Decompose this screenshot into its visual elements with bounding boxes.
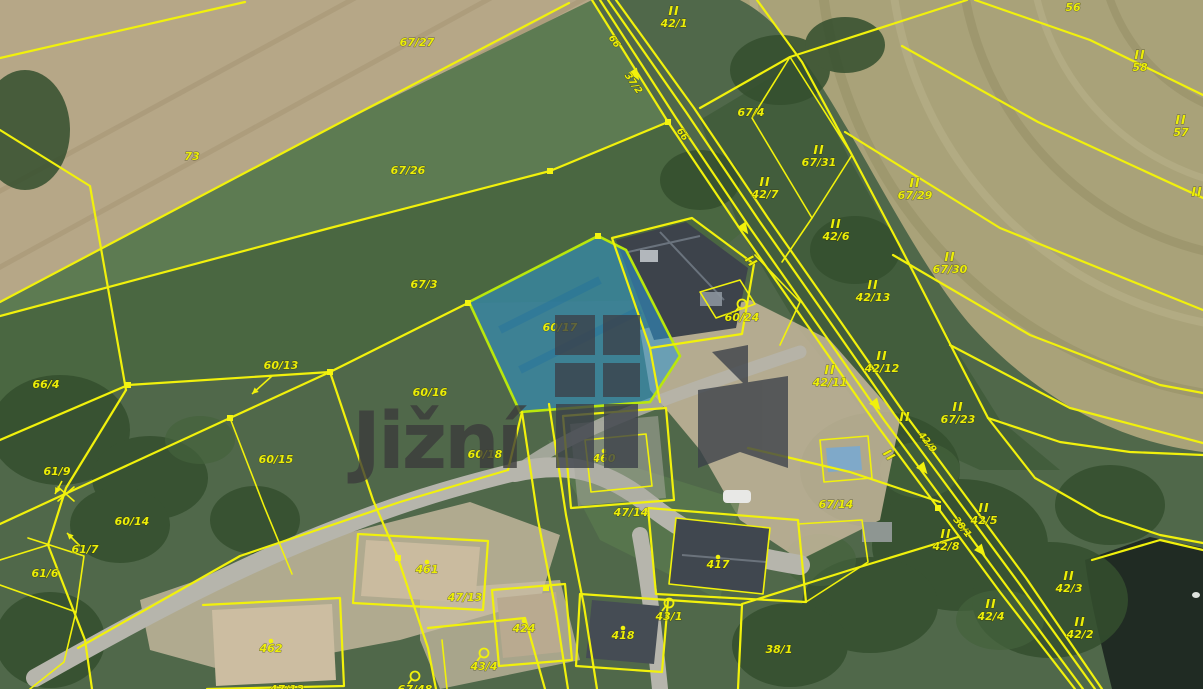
svg-text:42/1: 42/1 (660, 17, 688, 30)
ii-marker-icon: II (813, 142, 824, 157)
svg-text:417: 417 (706, 558, 730, 571)
white-car (723, 490, 751, 503)
svg-text:47/12: 47/12 (269, 683, 305, 689)
svg-text:58: 58 (1132, 61, 1148, 74)
parcel-label-67-27: 67/27 (400, 36, 435, 49)
ii-marker-icon: II (909, 175, 920, 190)
svg-text:38/1: 38/1 (766, 643, 793, 656)
svg-text:462: 462 (259, 642, 283, 655)
svg-text:67/26: 67/26 (391, 164, 426, 177)
parcel-label-424: 424 (512, 619, 536, 635)
water-glint (1192, 592, 1200, 598)
svg-text:67/4: 67/4 (738, 106, 765, 119)
svg-text:67/3: 67/3 (411, 278, 438, 291)
svg-text:67/30: 67/30 (933, 263, 968, 276)
parcel-label-60-14: 60/14 (115, 515, 150, 528)
parcel-label-418: 418 (611, 626, 635, 642)
svg-text:60/15: 60/15 (259, 453, 294, 466)
parcel-label-60-15: 60/15 (259, 453, 294, 466)
svg-text:60/13: 60/13 (264, 359, 299, 372)
svg-text:424: 424 (512, 622, 536, 635)
svg-text:67/29: 67/29 (898, 189, 933, 202)
gray-shed (862, 522, 892, 542)
svg-text:67/31: 67/31 (802, 156, 837, 169)
parcel-label-67-14: 67/14 (819, 498, 854, 511)
svg-text:61/6: 61/6 (32, 567, 59, 580)
svg-text:42/13: 42/13 (855, 291, 891, 304)
svg-text:67/23: 67/23 (941, 413, 976, 426)
ii-marker-icon: II (1074, 614, 1085, 629)
cadastral-map-viewport[interactable]: 67/277367/2667/366/4II42/167/456II58II57… (0, 0, 1203, 689)
ii-marker-icon: II (952, 399, 963, 414)
parcel-label-61-6: 61/6 (32, 567, 59, 580)
parcel-label-ii-marker: II (1191, 184, 1202, 199)
ii-marker-icon: II (978, 500, 989, 515)
ii-marker-icon: II (1134, 47, 1145, 62)
ii-marker-icon: II (1175, 112, 1186, 127)
svg-text:43/4: 43/4 (470, 660, 498, 673)
ii-marker-icon: II (876, 348, 887, 363)
parcel-label-38-1: 38/1 (766, 643, 793, 656)
parcel-label-67-4: 67/4 (738, 106, 765, 119)
ii-marker-icon: II (1191, 184, 1202, 199)
svg-text:42/11: 42/11 (812, 376, 848, 389)
svg-text:42/2: 42/2 (1066, 628, 1094, 641)
parcel-label-58: II58 (1132, 47, 1148, 74)
parcel-label-47-12: 47/12 (269, 683, 305, 689)
svg-text:60/14: 60/14 (115, 515, 150, 528)
svg-text:42/3: 42/3 (1055, 582, 1083, 595)
parcel-label-66-4: 66/4 (33, 378, 60, 391)
svg-text:67/48: 67/48 (398, 683, 433, 689)
svg-text:461: 461 (415, 563, 439, 576)
ii-marker-icon: II (867, 277, 878, 292)
parcel-label-47-13: 47/13 (447, 591, 483, 604)
svg-text:66/4: 66/4 (33, 378, 60, 391)
svg-text:56: 56 (1065, 1, 1081, 14)
svg-text:42/7: 42/7 (751, 188, 779, 201)
ii-marker-icon: II (830, 216, 841, 231)
svg-text:43/1: 43/1 (655, 610, 683, 623)
svg-text:67/14: 67/14 (819, 498, 854, 511)
watermark-text: Jižní (347, 397, 528, 487)
ii-marker-icon: II (824, 362, 835, 377)
svg-text:42/8: 42/8 (932, 540, 960, 553)
svg-text:67/27: 67/27 (400, 36, 435, 49)
orthophoto-cadastre-svg: 67/277367/2667/366/4II42/167/456II58II57… (0, 0, 1203, 689)
parcel-label-47-14: 47/14 (613, 506, 649, 519)
svg-text:47/13: 47/13 (447, 591, 483, 604)
svg-text:42/12: 42/12 (864, 362, 900, 375)
parcel-label-56: 56 (1065, 1, 1081, 14)
svg-text:418: 418 (611, 629, 635, 642)
svg-text:73: 73 (184, 150, 200, 163)
ii-marker-icon: II (940, 526, 951, 541)
svg-text:57: 57 (1173, 126, 1189, 139)
parcel-label-417: 417 (706, 555, 730, 571)
parcel-label-67-26: 67/26 (391, 164, 426, 177)
parcel-label-73: 73 (184, 150, 200, 163)
svg-text:61/9: 61/9 (44, 465, 71, 478)
ii-marker-icon: II (1063, 568, 1074, 583)
parcel-label-461: 461 (415, 560, 439, 576)
parcel-label-ii-marker: II (899, 409, 910, 424)
svg-text:42/5: 42/5 (970, 514, 998, 527)
parcel-label-462: 462 (259, 639, 283, 655)
ii-marker-icon: II (944, 249, 955, 264)
svg-text:47/14: 47/14 (613, 506, 649, 519)
parcel-label-57: II57 (1173, 112, 1189, 139)
svg-text:42/4: 42/4 (977, 610, 1005, 623)
parcel-label-67-3: 67/3 (411, 278, 438, 291)
ii-marker-icon: II (668, 3, 679, 18)
svg-text:60/24: 60/24 (725, 311, 760, 324)
ii-marker-icon: II (899, 409, 910, 424)
ii-marker-icon: II (985, 596, 996, 611)
ii-marker-icon: II (759, 174, 770, 189)
svg-text:42/6: 42/6 (822, 230, 850, 243)
svg-text:61/7: 61/7 (72, 543, 99, 556)
